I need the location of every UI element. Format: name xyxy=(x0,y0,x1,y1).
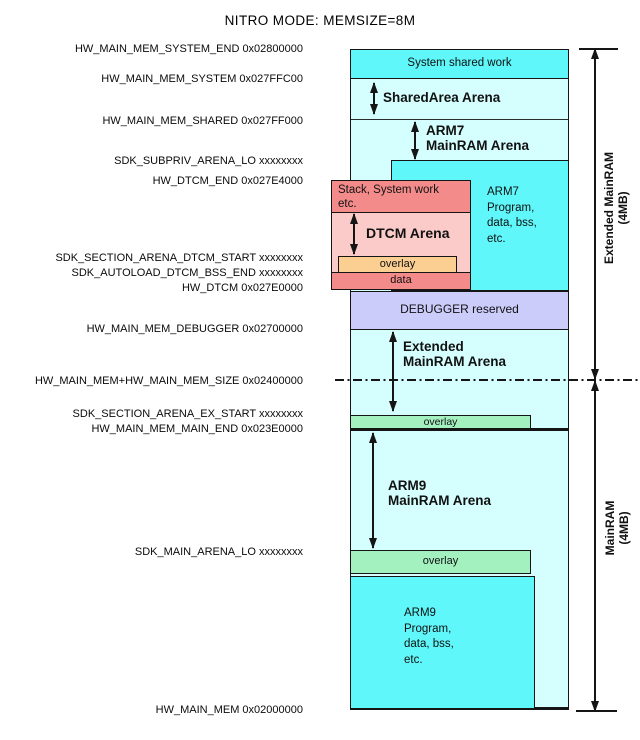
stack-system-work-block: Stack, System work etc. xyxy=(332,181,470,213)
main-end-boundary-line xyxy=(350,428,569,431)
dtcm-data-block: data xyxy=(332,272,470,289)
label-hw-dtcm-end: HW_DTCM_END 0x027E4000 xyxy=(153,174,303,188)
label-hw-main-mem-system-end: HW_MAIN_MEM_SYSTEM_END 0x02800000 xyxy=(75,42,303,56)
debugger-reserved-block: DEBUGGER reserved xyxy=(350,291,569,330)
bottom-extent-tick xyxy=(576,710,617,712)
extended-mainram-arena-label: Extended MainRAM Arena xyxy=(403,339,506,369)
extended-mainram-4mb-label: Extended MainRAM (4MB) xyxy=(602,128,630,288)
arm7-program-label: ARM7 Program, data, bss, etc. xyxy=(487,185,537,247)
label-hw-main-mem-system: HW_MAIN_MEM_SYSTEM 0x027FFC00 xyxy=(101,72,303,86)
arm9-mainram-arena-label: ARM9 MainRAM Arena xyxy=(388,478,491,508)
label-hw-dtcm: HW_DTCM 0x027E0000 xyxy=(182,281,303,295)
label-sdk-section-arena-dtcm-start: SDK_SECTION_ARENA_DTCM_START xxxxxxxx xyxy=(55,251,303,265)
label-sdk-main-arena-lo: SDK_MAIN_ARENA_LO xxxxxxxx xyxy=(135,545,303,559)
dtcm-arena-label: DTCM Arena xyxy=(366,225,450,241)
label-sdk-subpriv-arena-lo: SDK_SUBPRIV_ARENA_LO xxxxxxxx xyxy=(114,154,303,168)
memory-map-diagram: NITRO MODE: MEMSIZE=8M HW_MAIN_MEM_SYSTE… xyxy=(0,0,640,740)
arm9-mainram-arena-arrow xyxy=(372,433,374,548)
arm7-mainram-arena-arrow xyxy=(414,122,416,159)
extended-mainram-arena-arrow xyxy=(392,332,394,411)
sharedarea-arena-label: SharedArea Arena xyxy=(383,90,500,105)
extended-mainram-measure-arrow xyxy=(594,49,596,379)
arm9-program-label: ARM9 Program, data, bss, etc. xyxy=(404,606,454,668)
dtcm-arena-arrow xyxy=(353,214,355,254)
overlay-main-block: overlay xyxy=(350,550,531,574)
label-hw-main-mem-shared: HW_MAIN_MEM_SHARED 0x027FF000 xyxy=(102,114,303,128)
label-hw-main-mem-size: HW_MAIN_MEM+HW_MAIN_MEM_SIZE 0x02400000 xyxy=(35,374,303,388)
label-sdk-autoload-dtcm-bss-end: SDK_AUTOLOAD_DTCM_BSS_END xxxxxxxx xyxy=(72,266,303,280)
dtcm-region: Stack, System work etc. DTCM Arena overl… xyxy=(331,180,471,290)
mainram-4mb-label: MainRAM (4MB) xyxy=(603,473,631,583)
mainram-measure-arrow xyxy=(594,381,596,711)
sharedarea-arena-arrow xyxy=(373,83,375,114)
diagram-title: NITRO MODE: MEMSIZE=8M xyxy=(0,13,640,28)
overlay-ex-block: overlay xyxy=(350,415,531,429)
label-hw-main-mem-debugger: HW_MAIN_MEM_DEBUGGER 0x02700000 xyxy=(87,322,303,336)
label-hw-main-mem-main-end: HW_MAIN_MEM_MAIN_END 0x023E0000 xyxy=(91,422,303,436)
arm7-mainram-arena-label: ARM7 MainRAM Arena xyxy=(426,123,529,153)
system-shared-work-block: System shared work xyxy=(350,49,569,79)
label-hw-main-mem: HW_MAIN_MEM 0x02000000 xyxy=(156,703,303,717)
shared-boundary-line xyxy=(351,119,568,120)
label-sdk-section-arena-ex-start: SDK_SECTION_ARENA_EX_START xxxxxxxx xyxy=(73,407,303,421)
